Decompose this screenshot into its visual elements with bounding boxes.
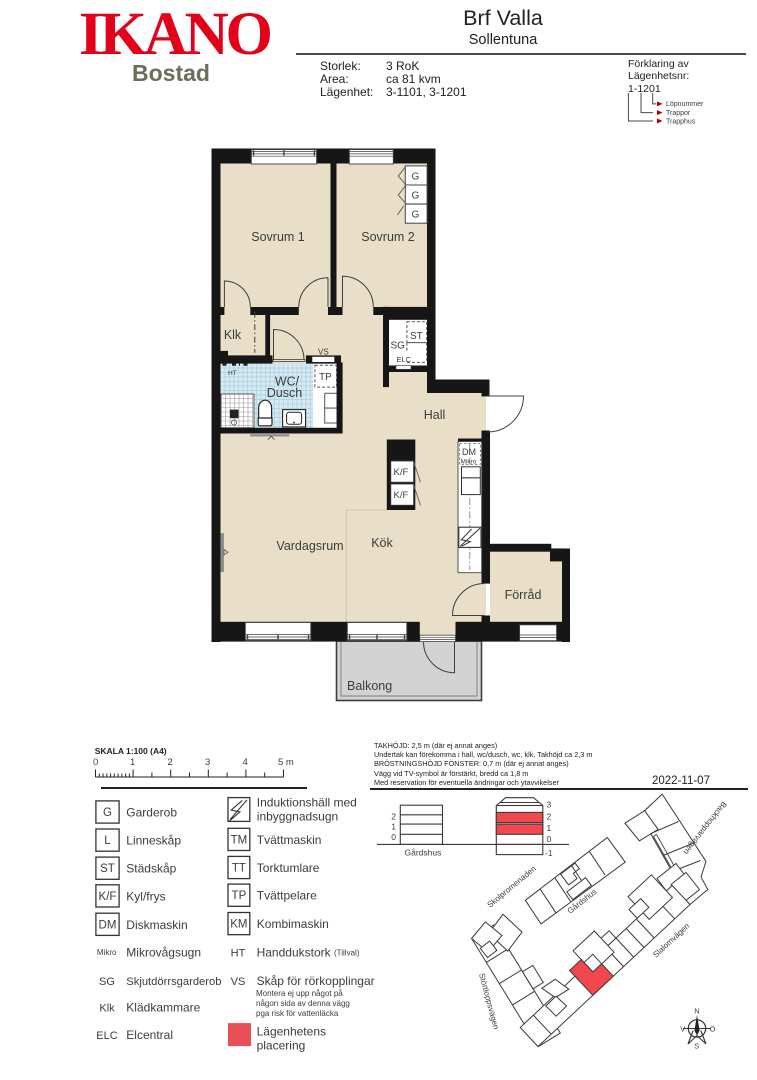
svg-text:G: G xyxy=(412,191,420,202)
svg-text:Löpnummer: Löpnummer xyxy=(666,101,704,108)
svg-text:2: 2 xyxy=(168,757,173,768)
svg-text:Kök: Kök xyxy=(371,536,393,550)
svg-text:Garderob: Garderob xyxy=(126,806,177,820)
svg-text:ELC: ELC xyxy=(397,355,412,364)
svg-text:Diskmaskin: Diskmaskin xyxy=(126,918,187,932)
svg-text:SG: SG xyxy=(391,341,406,352)
svg-text:0: 0 xyxy=(547,834,552,844)
svg-text:Skåp för rörkopplingar: Skåp för rörkopplingar xyxy=(257,974,375,988)
svg-text:ST: ST xyxy=(410,331,423,342)
svg-text:S: S xyxy=(694,1042,699,1051)
svg-text:Klk: Klk xyxy=(99,1003,115,1015)
svg-text:TM: TM xyxy=(231,834,248,846)
svg-text:DM: DM xyxy=(99,919,117,931)
svg-text:1: 1 xyxy=(391,822,396,832)
svg-text:1: 1 xyxy=(547,823,552,833)
svg-text:G: G xyxy=(412,210,420,221)
svg-text:G: G xyxy=(103,807,112,819)
svg-text:SG: SG xyxy=(99,976,115,988)
svg-text:ST: ST xyxy=(100,863,115,875)
svg-text:Dusch: Dusch xyxy=(267,386,302,400)
svg-text:(Tillval): (Tillval) xyxy=(334,949,360,958)
svg-text:VS: VS xyxy=(231,976,246,988)
svg-text:Skjutdörrsgarderob: Skjutdörrsgarderob xyxy=(126,976,221,988)
svg-text:Trapphus: Trapphus xyxy=(666,119,696,126)
svg-text:DM: DM xyxy=(462,447,476,457)
svg-text:Torktumlare: Torktumlare xyxy=(257,861,320,875)
svg-text:TP: TP xyxy=(319,372,332,383)
svg-text:Mikrovågsugn: Mikrovågsugn xyxy=(126,946,201,960)
svg-text:1: 1 xyxy=(130,757,135,768)
svg-text:Lägenhetens: Lägenhetens xyxy=(257,1025,326,1039)
svg-text:0: 0 xyxy=(93,757,98,768)
svg-text:pga risk för vattenläcka: pga risk för vattenläcka xyxy=(256,1009,339,1018)
svg-text:KM: KM xyxy=(230,919,247,931)
svg-text:5 m: 5 m xyxy=(278,757,294,768)
svg-text:Induktionshäll med: Induktionshäll med xyxy=(257,796,357,810)
svg-text:Städskåp: Städskåp xyxy=(126,862,176,876)
svg-text:Mikro: Mikro xyxy=(97,948,117,957)
svg-text:Tvättmaskin: Tvättmaskin xyxy=(257,833,322,847)
svg-text:Linneskåp: Linneskåp xyxy=(126,834,181,848)
svg-text:Handdukstork: Handdukstork xyxy=(257,946,332,960)
svg-text:Trappor: Trappor xyxy=(666,110,691,117)
svg-text:Förråd: Förråd xyxy=(505,588,542,602)
svg-text:Gårdshus: Gårdshus xyxy=(405,848,442,858)
svg-text:N: N xyxy=(694,1007,699,1016)
svg-text:inbyggnadsugn: inbyggnadsugn xyxy=(257,810,338,824)
svg-text:ELC: ELC xyxy=(96,1030,117,1042)
svg-text:L: L xyxy=(104,835,111,847)
svg-text:V: V xyxy=(680,1025,685,1034)
svg-text:Ö: Ö xyxy=(710,1025,716,1034)
svg-text:HT: HT xyxy=(228,370,237,377)
svg-text:4: 4 xyxy=(243,757,248,768)
svg-text:Elcentral: Elcentral xyxy=(126,1028,173,1042)
svg-text:G: G xyxy=(412,172,420,183)
svg-text:TT: TT xyxy=(232,863,246,875)
svg-text:0: 0 xyxy=(391,832,396,842)
svg-text:Tvättpelare: Tvättpelare xyxy=(257,889,317,903)
svg-text:Vardagsrum: Vardagsrum xyxy=(276,539,343,553)
svg-text:K/F: K/F xyxy=(394,467,409,478)
svg-text:någon sida av denna vägg: någon sida av denna vägg xyxy=(256,999,350,1008)
svg-text:Hall: Hall xyxy=(424,408,446,422)
svg-text:-1: -1 xyxy=(545,848,553,858)
svg-text:Mikro: Mikro xyxy=(461,459,477,466)
svg-text:HT: HT xyxy=(231,948,246,960)
svg-text:2: 2 xyxy=(391,812,396,822)
svg-text:Sovrum 2: Sovrum 2 xyxy=(361,230,415,244)
svg-text:Klk: Klk xyxy=(224,328,242,342)
svg-text:VS: VS xyxy=(318,348,329,357)
svg-text:Montera ej upp något på: Montera ej upp något på xyxy=(256,989,343,998)
svg-text:K/F: K/F xyxy=(99,891,117,903)
svg-text:Kombimaskin: Kombimaskin xyxy=(257,917,329,931)
svg-text:K/F: K/F xyxy=(394,490,409,501)
svg-text:Balkong: Balkong xyxy=(347,679,392,693)
svg-text:Kyl/frys: Kyl/frys xyxy=(126,889,165,903)
svg-text:placering: placering xyxy=(257,1039,306,1053)
svg-text:3: 3 xyxy=(205,757,210,768)
svg-text:Backhopparvägen: Backhopparvägen xyxy=(682,800,729,856)
svg-text:TP: TP xyxy=(232,890,247,902)
svg-text:3: 3 xyxy=(547,800,552,810)
svg-text:Klädkammare: Klädkammare xyxy=(126,1001,200,1015)
svg-text:Sovrum 1: Sovrum 1 xyxy=(251,230,305,244)
svg-text:2: 2 xyxy=(547,812,552,822)
